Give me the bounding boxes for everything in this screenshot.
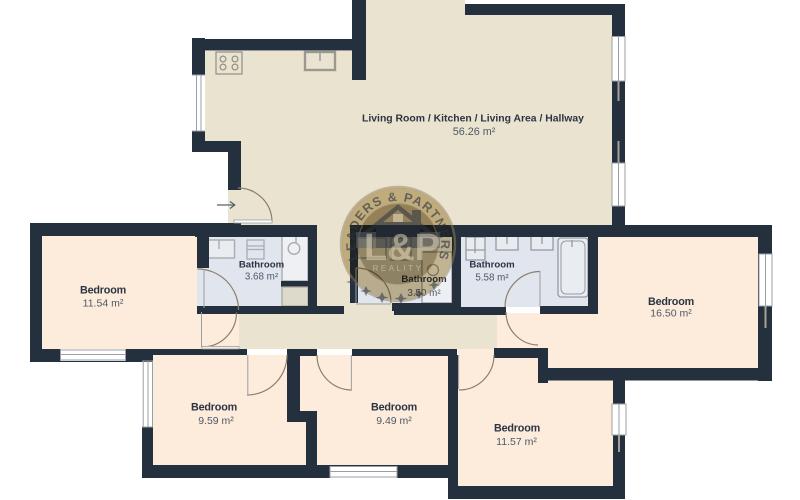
svg-text:Bedroom: Bedroom: [371, 402, 417, 414]
svg-text:3.68 m²: 3.68 m²: [245, 272, 279, 283]
svg-text:L&P: L&P: [364, 227, 440, 269]
svg-text:Bedroom: Bedroom: [80, 285, 126, 297]
svg-text:Living Room / Kitchen / Living: Living Room / Kitchen / Living Area / Ha…: [362, 114, 584, 125]
svg-text:Bedroom: Bedroom: [648, 296, 694, 308]
svg-text:Bedroom: Bedroom: [494, 423, 540, 435]
svg-text:9.59 m²: 9.59 m²: [198, 415, 234, 427]
svg-text:11.57 m²: 11.57 m²: [496, 436, 537, 448]
svg-text:Bedroom: Bedroom: [191, 402, 237, 414]
svg-text:Bathroom: Bathroom: [469, 260, 514, 271]
svg-text:5.58 m²: 5.58 m²: [475, 273, 509, 284]
svg-text:11.54 m²: 11.54 m²: [83, 298, 124, 310]
svg-text:56.26 m²: 56.26 m²: [453, 126, 496, 138]
svg-text:9.49 m²: 9.49 m²: [376, 415, 412, 427]
svg-text:Bathroom: Bathroom: [239, 260, 284, 271]
svg-text:REALITY: REALITY: [373, 264, 424, 273]
svg-text:16.50 m²: 16.50 m²: [650, 308, 692, 320]
